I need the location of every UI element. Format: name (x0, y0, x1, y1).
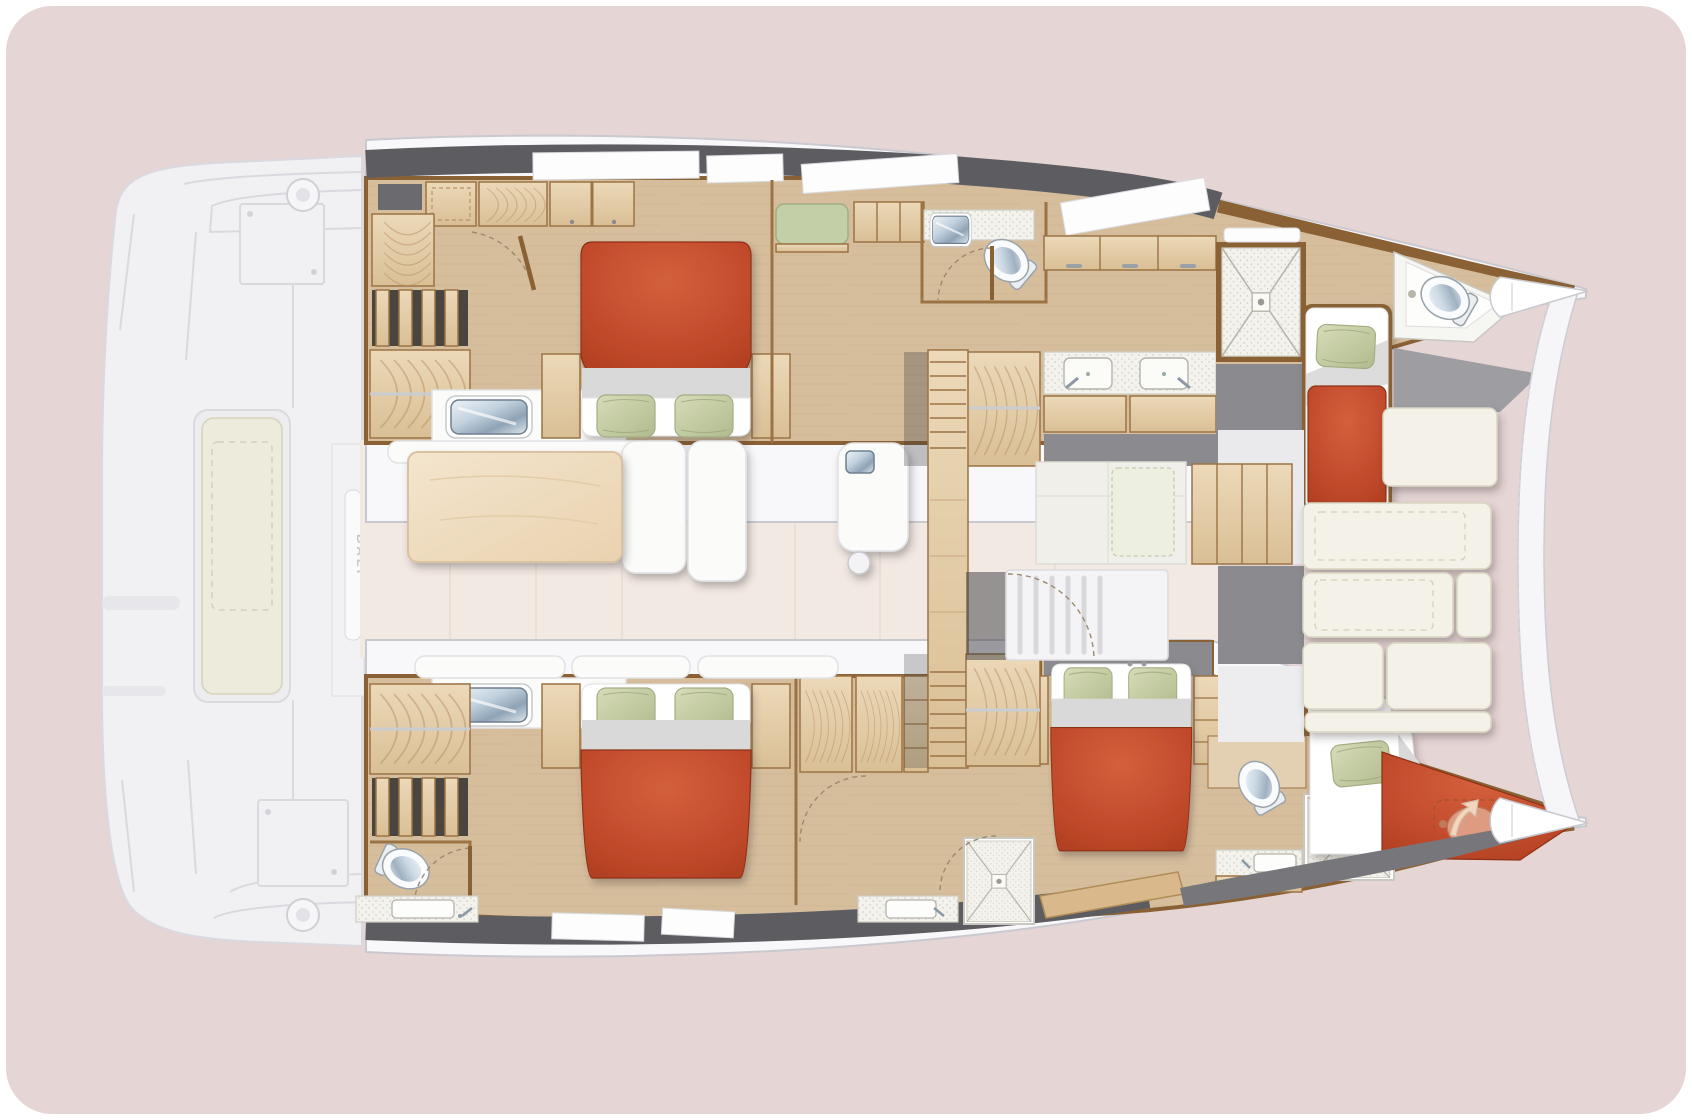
shower-icon (1222, 248, 1300, 356)
bedside-cabinet (542, 354, 580, 438)
shelf-cabinet (854, 202, 924, 242)
bedside-cabinet (542, 684, 580, 768)
deck-step (102, 686, 166, 696)
bath-counter (858, 896, 958, 922)
floorplan-page: BALI (0, 0, 1692, 1120)
deck-step (102, 596, 180, 610)
double-bed-icon (1051, 664, 1192, 851)
hanging-locker-icon (372, 214, 434, 286)
hanging-locker-icon (856, 676, 902, 772)
shower-icon (964, 838, 1034, 924)
steel-sink-icon (846, 451, 874, 473)
galley-counters (1036, 462, 1186, 564)
sunpad-cushion (1387, 643, 1491, 709)
bath-counter (356, 896, 478, 922)
upper-cabinets (1044, 236, 1216, 270)
sofa-icon (622, 441, 686, 573)
drawer-bank (1130, 396, 1216, 432)
sunpad-cushion (1383, 408, 1497, 486)
dinette (388, 441, 746, 581)
sunpad-cushion (1457, 573, 1491, 637)
stairwell-shadow (966, 572, 1006, 660)
deck-hatch-panel (258, 800, 348, 886)
double-bed-icon (581, 242, 751, 437)
forward-door-wood (1192, 464, 1292, 564)
sofa-chaise (688, 441, 746, 581)
fridge-icon (1112, 468, 1174, 556)
single-berth-icon (1302, 304, 1392, 514)
louvered-door (1006, 570, 1168, 660)
hanging-locker-icon (479, 182, 547, 226)
shelf-cabinet (550, 182, 634, 226)
double-bed-icon (581, 684, 751, 878)
bedside-cabinet (752, 684, 790, 768)
round-sink (848, 552, 870, 574)
sunpad-cushion (1305, 712, 1491, 732)
stairs-icon (372, 778, 468, 836)
sunpad-cushion (1303, 643, 1383, 709)
hanging-locker-icon (966, 352, 1040, 466)
hanging-locker-icon (370, 684, 470, 774)
dinette-table-icon (408, 452, 622, 562)
bench-seat (194, 410, 290, 702)
hanging-locker-icon (966, 654, 1040, 766)
forward-floor-white (1218, 666, 1304, 742)
deck-hatch-panel (240, 204, 324, 284)
sunpad-cushion (1303, 573, 1453, 637)
settee-cushion (776, 204, 848, 252)
drawer-bank (1044, 396, 1126, 432)
forward-floor-gray (1218, 566, 1304, 664)
aft-deck: BALI (102, 156, 369, 946)
salon-seat-backs (415, 656, 838, 678)
twin-sink-vanity-icon (1044, 352, 1216, 394)
hatch (378, 184, 422, 210)
hull-floor-gray (1044, 434, 1216, 466)
stairs-icon (372, 290, 468, 346)
hanging-locker-icon (800, 676, 852, 772)
catamaran-floorplan: BALI (0, 0, 1692, 1120)
steel-sink-icon (930, 213, 971, 247)
